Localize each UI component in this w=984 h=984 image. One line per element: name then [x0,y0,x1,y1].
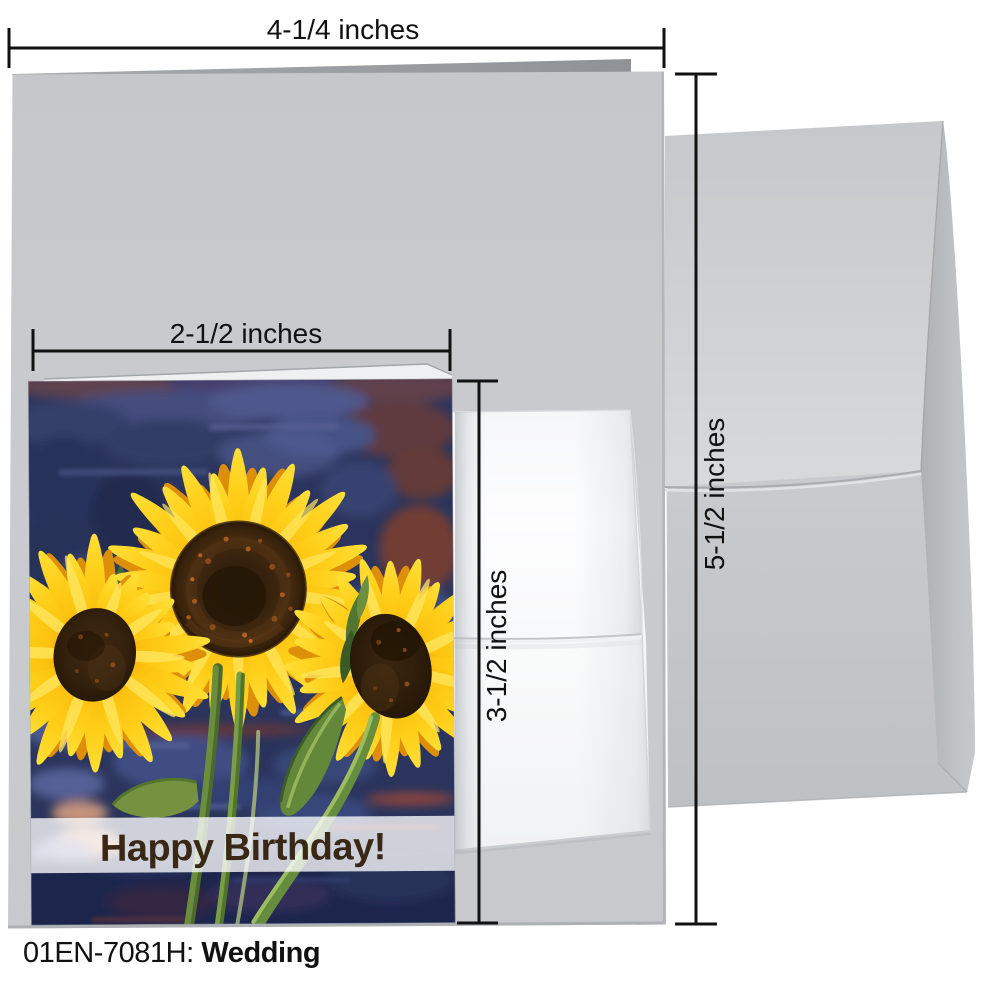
svg-text:01EN-7081H: Wedding: 01EN-7081H: Wedding [23,937,320,969]
svg-text:2-1/2 inches: 2-1/2 inches [170,318,323,349]
svg-text:3-1/2 inches: 3-1/2 inches [481,570,512,723]
svg-text:5-1/2 inches: 5-1/2 inches [699,418,730,571]
svg-text:Happy Birthday!: Happy Birthday! [100,826,386,870]
svg-text:4-1/4 inches: 4-1/4 inches [267,14,420,45]
